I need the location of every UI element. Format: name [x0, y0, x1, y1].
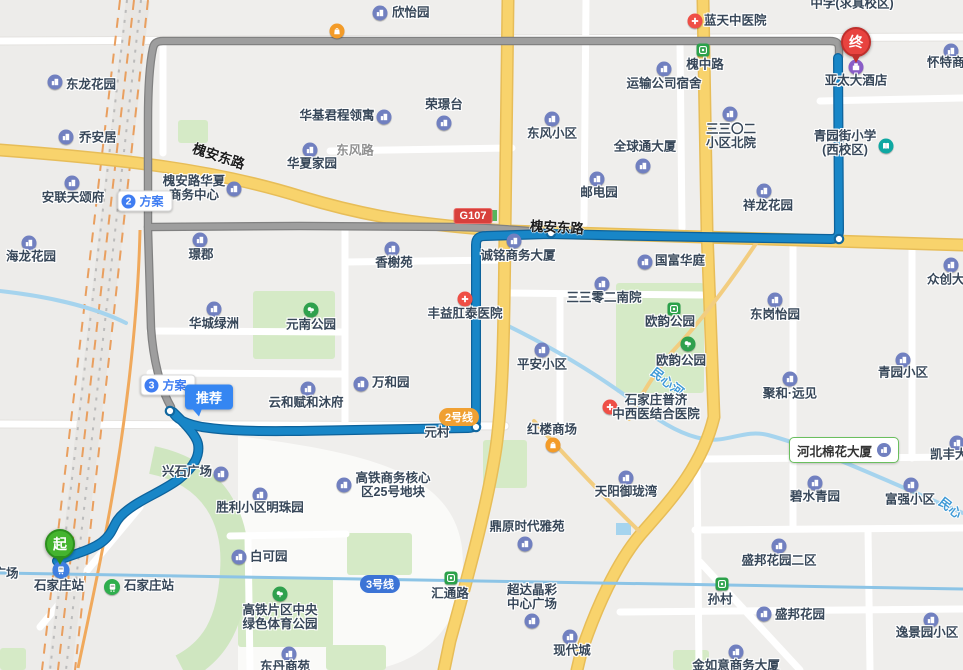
map-canvas[interactable]: 欣怡园蓝天中医院中学(求真校区)怀特商槐中路运输公司宿舍三三〇二小区北院东风小区…	[0, 0, 963, 670]
poi-label[interactable]: 汇通路	[431, 587, 469, 601]
building-icon[interactable]	[657, 62, 672, 77]
poi-label[interactable]: 富强小区	[885, 493, 935, 507]
train-green-icon[interactable]	[104, 579, 120, 595]
poi-label[interactable]: 逸景园小区	[896, 626, 959, 640]
poi-label[interactable]: 广场	[0, 567, 19, 581]
building-icon[interactable]	[808, 476, 823, 491]
road-name-label: 东风路	[336, 140, 374, 159]
poi-label[interactable]: 华基君程领寓	[299, 109, 374, 123]
recommended-tooltip[interactable]: 推荐	[185, 385, 233, 410]
poi-label[interactable]: 石家庄站	[34, 579, 84, 593]
building-icon[interactable]	[783, 372, 798, 387]
poi-label[interactable]: 兴石广场	[162, 465, 212, 479]
building-icon[interactable]	[525, 614, 540, 629]
poi-label[interactable]: 华夏家园	[287, 157, 337, 171]
end-marker-label: 终	[849, 32, 863, 52]
poi-label[interactable]: 高铁商务核心区25号地块	[355, 472, 430, 499]
poi-label[interactable]: 怀特商	[927, 56, 963, 70]
poi-label[interactable]: 金如意商务大厦	[692, 659, 780, 670]
poi-label[interactable]: 璟郡	[188, 248, 213, 262]
poi-label[interactable]: 孙村	[707, 593, 732, 607]
poi-label[interactable]: 丰益肛泰医院	[427, 307, 502, 321]
plan-number: 3	[144, 378, 158, 392]
park-icon[interactable]	[273, 587, 288, 602]
poi-label[interactable]: 元南公园	[286, 318, 336, 332]
building-icon[interactable]	[337, 478, 352, 493]
line-2-badge[interactable]: 2号线	[439, 408, 479, 426]
metro-icon[interactable]	[716, 578, 729, 591]
poi-label[interactable]: 云和赋和沐府	[268, 396, 343, 410]
poi-label[interactable]: 荣璟台	[425, 98, 463, 112]
poi-label[interactable]: 碧水青园	[790, 490, 840, 504]
poi-label[interactable]: 槐中路	[686, 58, 724, 72]
poi-label[interactable]: 石家庄站	[124, 579, 174, 593]
building-icon[interactable]	[563, 630, 578, 645]
building-icon[interactable]	[22, 236, 37, 251]
building-icon[interactable]	[723, 107, 738, 122]
building-icon[interactable]	[944, 258, 959, 273]
building-icon[interactable]	[303, 143, 318, 158]
park-icon[interactable]	[304, 303, 319, 318]
hospital-icon[interactable]	[688, 14, 703, 29]
plan-number: 2	[121, 194, 135, 208]
poi-label[interactable]: 全球通大厦	[614, 140, 677, 154]
building-icon[interactable]	[437, 116, 452, 131]
building-icon[interactable]	[595, 277, 610, 292]
building-icon[interactable]	[65, 176, 80, 191]
river-label: 民心	[935, 492, 963, 522]
building-icon[interactable]	[301, 382, 316, 397]
end-marker[interactable]: 终	[841, 27, 871, 57]
poi-label[interactable]: 华城绿洲	[189, 317, 239, 331]
building-icon[interactable]	[636, 159, 651, 174]
line-3-badge[interactable]: 3号线	[360, 575, 400, 593]
poi-label[interactable]: 胜利小区明珠园	[216, 501, 304, 515]
building-icon[interactable]	[507, 234, 522, 249]
building-icon[interactable]	[768, 293, 783, 308]
poi-label[interactable]: 盛邦花园	[775, 608, 825, 622]
highlighted-poi-label: 河北棉花大厦	[797, 441, 872, 460]
shopping-icon[interactable]	[330, 24, 345, 39]
poi-label[interactable]: 三三零二南院	[566, 291, 641, 305]
poi-label[interactable]: 聚和·远见	[763, 387, 817, 401]
building-icon[interactable]	[48, 75, 63, 90]
poi-label[interactable]: 众创大	[927, 273, 963, 287]
poi-label[interactable]: 诚铭商务大厦	[480, 249, 555, 263]
poi-label[interactable]: 欧韵公园	[645, 315, 695, 329]
building-icon[interactable]	[518, 537, 533, 552]
poi-label[interactable]: 白可园	[250, 550, 288, 564]
poi-label[interactable]: 盛邦花园二区	[741, 554, 816, 568]
start-marker[interactable]: 起	[45, 529, 75, 559]
poi-label[interactable]: 超达晶彩中心广场	[507, 584, 557, 611]
poi-label[interactable]: 青园小区	[878, 366, 928, 380]
poi-label[interactable]: 邮电园	[580, 186, 618, 200]
poi-label[interactable]: 香榭苑	[375, 256, 413, 270]
poi-label[interactable]: 现代城	[553, 644, 591, 658]
poi-label[interactable]: 高铁片区中央绿色体育公园	[242, 604, 317, 631]
building-icon[interactable]	[214, 467, 229, 482]
poi-label[interactable]: 乔安居	[79, 131, 117, 145]
building-icon[interactable]	[619, 471, 634, 486]
poi-label[interactable]: 东岗怡园	[750, 308, 800, 322]
poi-label[interactable]: 中学(求真校区)	[810, 0, 893, 11]
building-icon[interactable]	[373, 6, 388, 21]
poi-label[interactable]: 青园街小学(西校区)	[814, 130, 877, 157]
poi-label[interactable]: 三三〇二小区北院	[706, 123, 756, 150]
poi-label[interactable]: 欧韵公园	[656, 354, 706, 368]
park-icon[interactable]	[681, 337, 696, 352]
poi-label[interactable]: 元村	[424, 426, 449, 440]
route-plan-2-badge[interactable]: 2 方案	[117, 191, 172, 212]
start-marker-label: 起	[53, 534, 67, 554]
poi-label[interactable]: 东风小区	[527, 127, 577, 141]
highlighted-poi-cotton-building[interactable]: 河北棉花大厦	[789, 437, 899, 463]
building-icon[interactable]	[207, 302, 222, 317]
poi-label[interactable]: 红楼商场	[527, 423, 577, 437]
building-icon[interactable]	[729, 645, 744, 660]
building-icon[interactable]	[232, 550, 247, 565]
building-icon[interactable]	[193, 233, 208, 248]
plan-label: 方案	[162, 377, 186, 394]
building-icon[interactable]	[535, 343, 550, 358]
poi-label[interactable]: 凯丰大	[930, 448, 963, 462]
road-name-label: 槐安东路	[190, 137, 248, 173]
school-icon[interactable]	[879, 139, 894, 154]
poi-label[interactable]: 东丹商苑	[260, 660, 310, 670]
building-icon[interactable]	[904, 478, 919, 493]
poi-label[interactable]: 安联天颂府	[42, 191, 105, 205]
g107-badge: G107	[454, 208, 493, 224]
building-icon[interactable]	[59, 130, 74, 145]
building-icon[interactable]	[757, 184, 772, 199]
building-icon[interactable]	[377, 110, 392, 125]
road-name-label: 槐安东路	[530, 215, 585, 238]
plan-label: 方案	[139, 193, 163, 210]
building-icon[interactable]	[590, 172, 605, 187]
building-icon[interactable]	[545, 112, 560, 127]
poi-label[interactable]: 石家庄普济中西医结合医院	[612, 394, 700, 421]
shopping-icon[interactable]	[546, 438, 561, 453]
poi-label[interactable]: 蓝天中医院	[704, 14, 767, 28]
building-icon[interactable]	[772, 539, 787, 554]
building-icon[interactable]	[385, 242, 400, 257]
building-icon[interactable]	[227, 182, 242, 197]
poi-label[interactable]: 海龙花园	[6, 250, 56, 264]
poi-label[interactable]: 东龙花园	[66, 78, 116, 92]
poi-label[interactable]: 天阳御珑湾	[595, 485, 658, 499]
building-icon[interactable]	[757, 607, 772, 622]
building-icon[interactable]	[638, 255, 653, 270]
poi-label[interactable]: 万和园	[372, 376, 410, 390]
building-icon	[877, 443, 891, 457]
poi-label[interactable]: 国富华庭	[655, 254, 705, 268]
poi-label[interactable]: 亚太大酒店	[825, 74, 888, 88]
poi-label[interactable]: 运输公司宿舍	[626, 77, 701, 91]
poi-layer: 欣怡园蓝天中医院中学(求真校区)怀特商槐中路运输公司宿舍三三〇二小区北院东风小区…	[0, 0, 963, 670]
metro-icon[interactable]	[445, 572, 458, 585]
hospital-icon[interactable]	[458, 292, 473, 307]
poi-label[interactable]: 鼎原时代雅苑	[489, 520, 564, 534]
poi-label[interactable]: 平安小区	[517, 358, 567, 372]
metro-icon[interactable]	[697, 44, 710, 57]
poi-label[interactable]: 欣怡园	[392, 6, 430, 20]
poi-label[interactable]: 祥龙花园	[743, 199, 793, 213]
building-icon[interactable]	[354, 377, 369, 392]
